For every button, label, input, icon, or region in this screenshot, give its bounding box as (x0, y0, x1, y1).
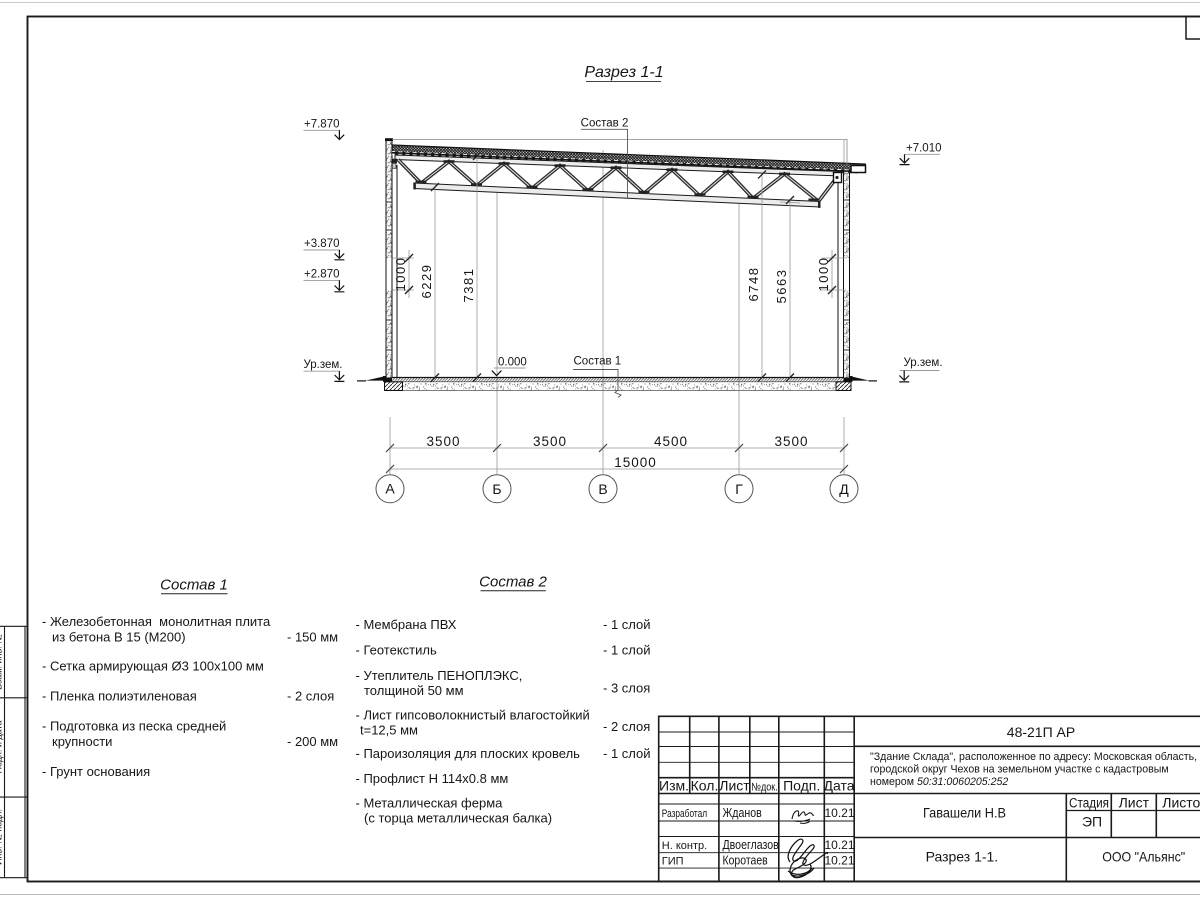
svg-text:ГИП: ГИП (662, 856, 684, 868)
svg-text:+2.870: +2.870 (304, 268, 340, 280)
svg-text:Б: Б (492, 481, 501, 497)
svg-text:1000: 1000 (393, 257, 408, 292)
svg-text:Гавашели Н.В: Гавашели Н.В (923, 805, 1006, 821)
svg-text:+7.010: +7.010 (906, 143, 942, 155)
svg-text:- 3 слоя: - 3 слоя (603, 680, 650, 695)
svg-text:- 1 слой: - 1 слой (603, 746, 651, 761)
svg-text:крупности: крупности (52, 734, 112, 749)
svg-text:ООО "Альянс": ООО "Альянс" (1102, 848, 1185, 864)
svg-text:10.21: 10.21 (824, 838, 854, 852)
svg-text:ЭП: ЭП (1082, 813, 1102, 829)
svg-text:Изм.: Изм. (659, 777, 689, 793)
svg-text:- Мембрана ПВХ: - Мембрана ПВХ (356, 617, 457, 632)
svg-text:1000: 1000 (816, 257, 831, 292)
svg-text:- 2 слоя: - 2 слоя (287, 688, 334, 703)
svg-text:Ур.зем.: Ур.зем. (904, 357, 943, 369)
svg-text:- 150 мм: - 150 мм (287, 630, 338, 645)
svg-text:"Здание Склада", расположенное: "Здание Склада", расположенное по адресу… (870, 751, 1197, 763)
svg-text:4500: 4500 (654, 434, 688, 449)
svg-text:городской округ Чехов на земел: городской округ Чехов на земельном участ… (870, 764, 1169, 776)
svg-text:- Лист гипсоволокнистый влагос: - Лист гипсоволокнистый влагостойкий (356, 708, 590, 723)
svg-text:6748: 6748 (746, 267, 761, 302)
svg-text:Разрез 1-1: Разрез 1-1 (584, 64, 663, 81)
svg-text:Жданов: Жданов (723, 806, 763, 820)
svg-text:Дата: Дата (823, 777, 854, 793)
svg-text:Инв. № подл.: Инв. № подл. (0, 809, 4, 865)
svg-text:10.21: 10.21 (824, 853, 854, 867)
svg-text:Д: Д (839, 481, 849, 497)
svg-text:В: В (598, 481, 607, 497)
svg-text:- Профлист Н 114х0.8 мм: - Профлист Н 114х0.8 мм (356, 771, 509, 786)
svg-text:Лист: Лист (719, 777, 750, 793)
svg-text:Коротаев: Коротаев (723, 854, 768, 868)
svg-text:3500: 3500 (774, 434, 808, 449)
svg-text:(с торца металлическая балка): (с торца металлическая балка) (364, 810, 552, 825)
svg-text:6229: 6229 (419, 264, 434, 299)
svg-text:- Пленка полиэтиленовая: - Пленка полиэтиленовая (42, 688, 197, 703)
svg-text:- 2 слоя: - 2 слоя (603, 719, 650, 734)
svg-text:Двоеглазов: Двоеглазов (723, 838, 780, 852)
svg-text:толщиной 50 мм: толщиной 50 мм (364, 683, 464, 698)
svg-text:10.21: 10.21 (824, 806, 854, 820)
svg-text:5663: 5663 (774, 269, 789, 304)
svg-text:А: А (385, 481, 395, 497)
svg-text:- 1 слой: - 1 слой (603, 643, 651, 658)
svg-text:Листов: Листов (1162, 795, 1200, 811)
svg-text:из бетона В 15 (М200): из бетона В 15 (М200) (52, 630, 186, 645)
svg-text:- 1 слой: - 1 слой (603, 617, 651, 632)
svg-text:Разработал: Разработал (662, 808, 707, 820)
svg-text:t=12,5 мм: t=12,5 мм (360, 722, 418, 737)
svg-text:- Металлическая ферма: - Металлическая ферма (356, 796, 504, 811)
svg-text:- 200 мм: - 200 мм (287, 734, 338, 749)
svg-text:Лист: Лист (1119, 795, 1150, 811)
svg-text:Подп.: Подп. (783, 777, 820, 793)
svg-text:Разрез 1-1.: Разрез 1-1. (926, 848, 999, 864)
svg-text:- Геотекстиль: - Геотекстиль (356, 643, 437, 658)
svg-text:- Утеплитель ПЕНОПЛЭКС,: - Утеплитель ПЕНОПЛЭКС, (356, 668, 523, 683)
svg-text:Взам. инв. №: Взам. инв. № (0, 634, 4, 690)
svg-text:Состав 1: Состав 1 (160, 577, 228, 594)
svg-text:№док.: №док. (751, 781, 778, 793)
svg-text:Состав 1: Состав 1 (574, 355, 622, 367)
svg-text:3500: 3500 (426, 434, 460, 449)
svg-text:3500: 3500 (533, 434, 567, 449)
svg-text:0.000: 0.000 (498, 356, 527, 368)
svg-text:48-21П АР: 48-21П АР (1007, 724, 1075, 740)
svg-text:Н. контр.: Н. контр. (662, 840, 707, 852)
svg-text:Состав 2: Состав 2 (479, 574, 547, 591)
svg-text:+3.870: +3.870 (304, 238, 340, 250)
svg-text:- Железобетонная монолитная п: - Железобетонная монолитная плита (42, 614, 271, 629)
svg-text:Ур.зем.: Ур.зем. (303, 359, 342, 371)
svg-text:номером 50:31:0060205:252: номером 50:31:0060205:252 (870, 776, 1008, 788)
svg-text:Г: Г (735, 481, 743, 497)
svg-text:15000: 15000 (614, 455, 657, 470)
svg-text:- Пароизоляция для плоских кро: - Пароизоляция для плоских кровель (356, 746, 581, 761)
svg-text:- Грунт основания: - Грунт основания (42, 764, 150, 779)
svg-text:Стадия: Стадия (1069, 796, 1109, 811)
svg-text:Подп. и дата: Подп. и дата (0, 720, 4, 773)
svg-text:- Подготовка из песка средней: - Подготовка из песка средней (42, 719, 226, 734)
svg-text:- Сетка армирующая Ø3 100х100: - Сетка армирующая Ø3 100х100 мм (42, 658, 264, 673)
svg-text:7381: 7381 (461, 268, 476, 303)
svg-text:Состав 2: Состав 2 (581, 118, 629, 130)
svg-text:+7.870: +7.870 (304, 118, 340, 130)
svg-text:Кол.: Кол. (691, 777, 719, 793)
